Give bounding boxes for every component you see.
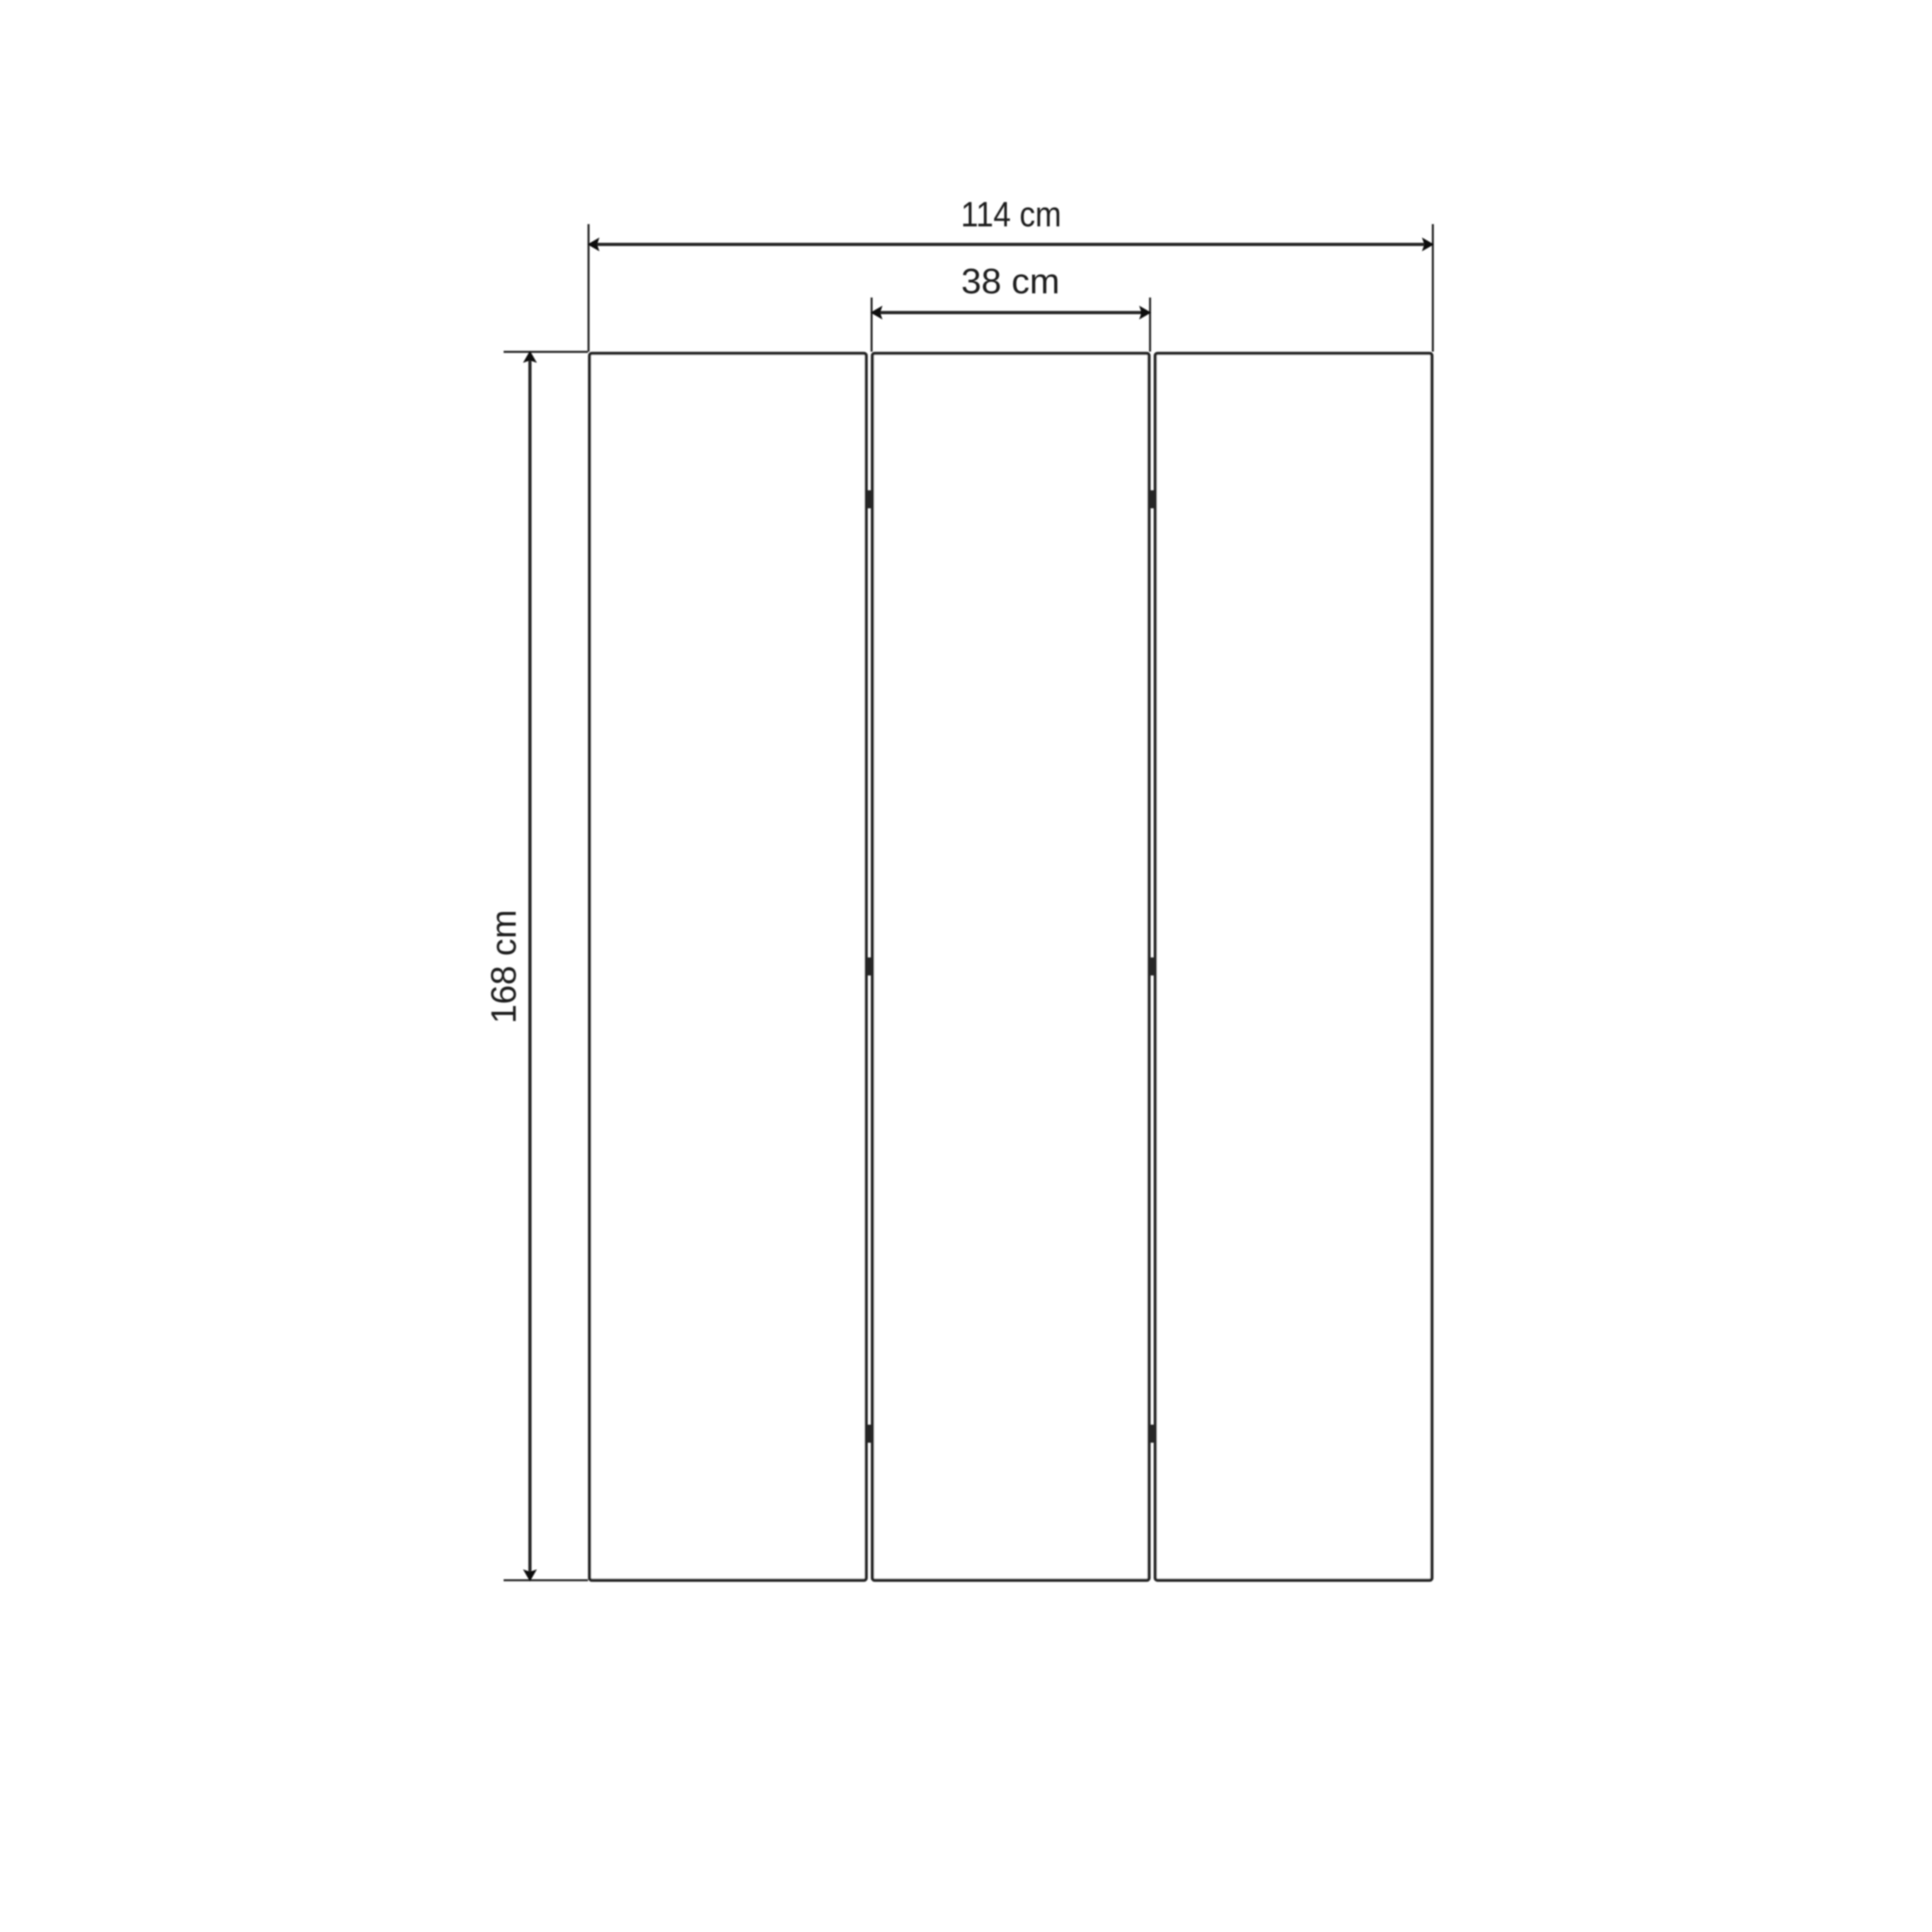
svg-text:38 cm: 38 cm bbox=[961, 261, 1060, 301]
svg-text:168 cm: 168 cm bbox=[484, 910, 524, 1024]
svg-text:114 cm: 114 cm bbox=[961, 194, 1061, 234]
